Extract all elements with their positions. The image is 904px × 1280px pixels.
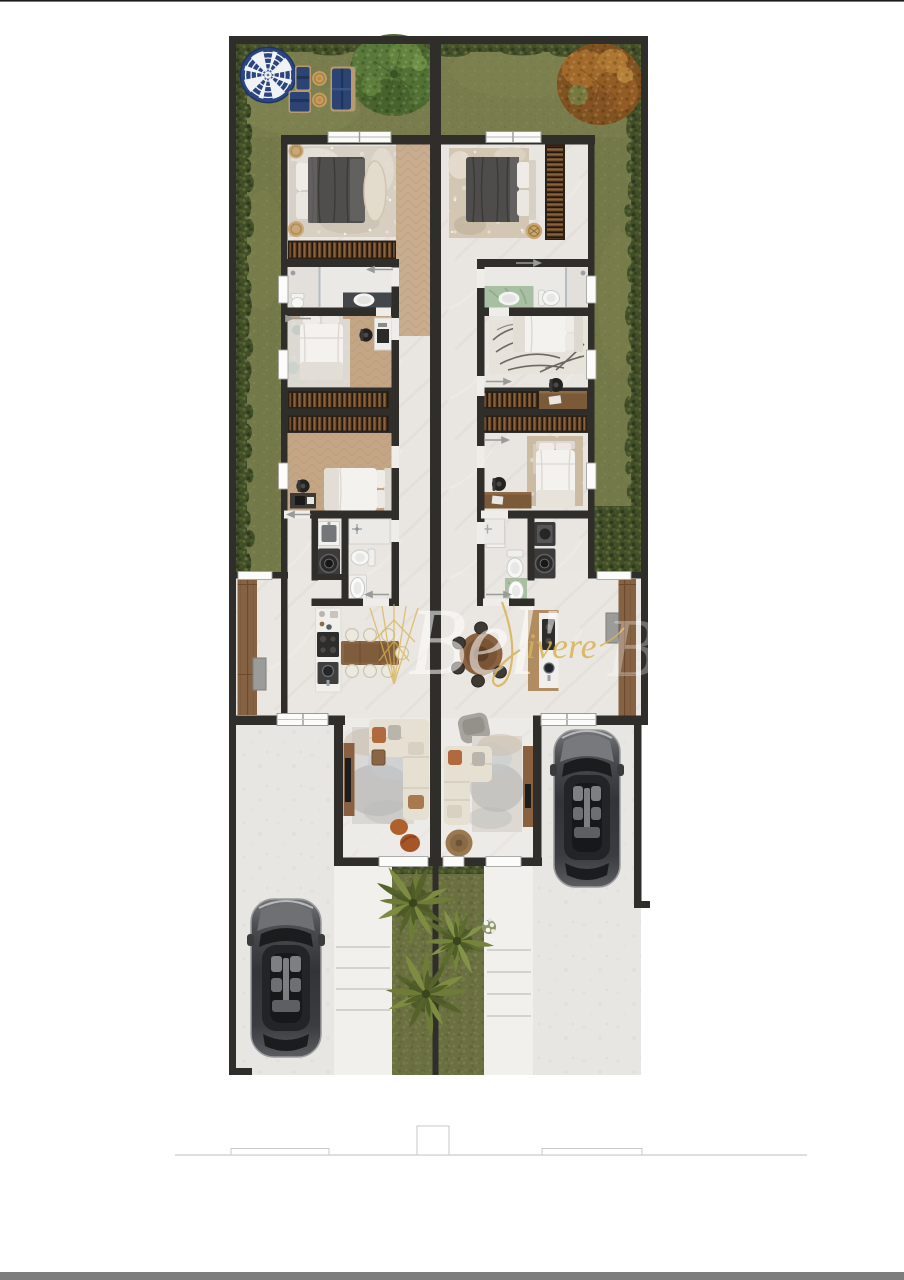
- svg-text:ivere: ivere: [526, 626, 597, 666]
- svg-text:B: B: [606, 602, 657, 695]
